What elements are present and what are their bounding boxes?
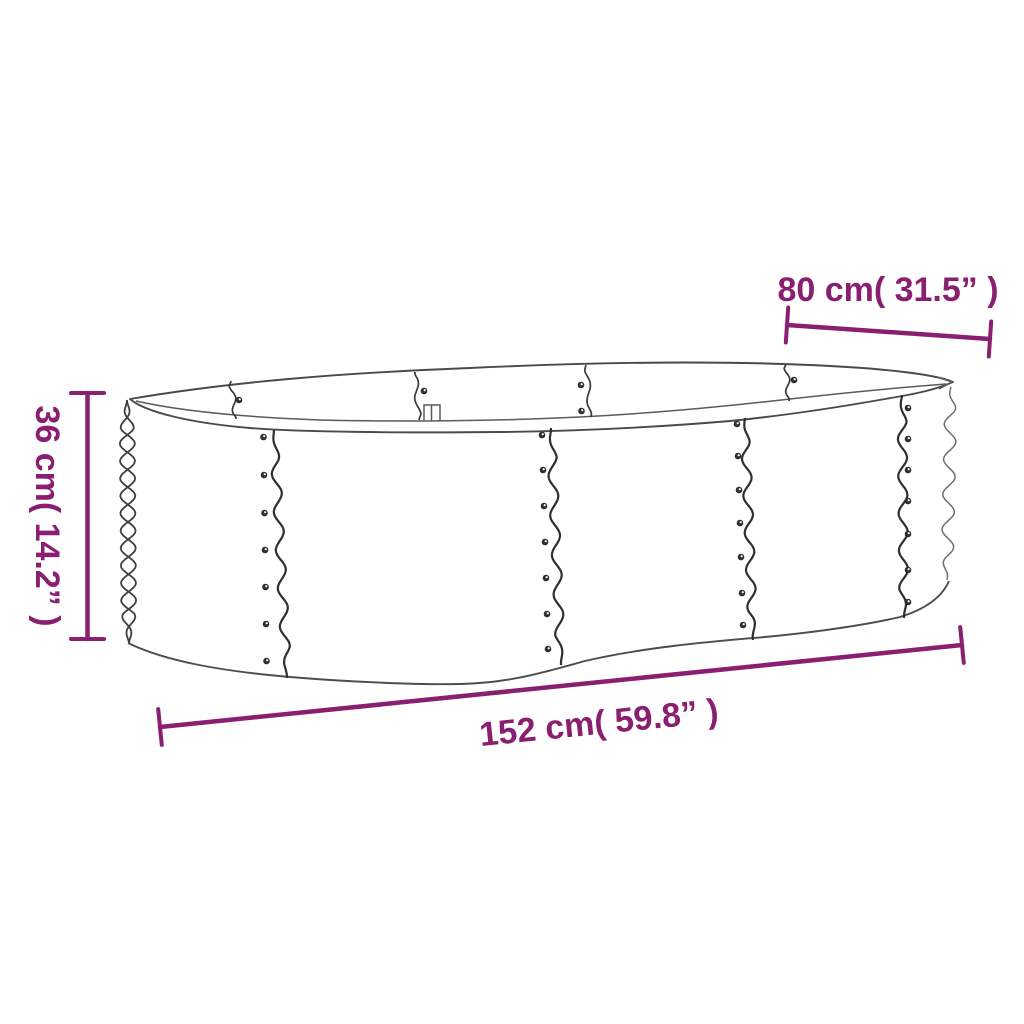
panel-seam-front	[742, 418, 756, 640]
planter-rim-outline	[130, 363, 953, 433]
height-dimension-label: 36 cm( 14.2” )	[28, 405, 66, 626]
length-dimension-tick-left	[158, 709, 162, 745]
panel-seam-front	[549, 428, 564, 665]
planter-right-corrugation	[942, 387, 956, 580]
rivet-column	[260, 434, 270, 665]
width-dimension-tick-left	[786, 308, 788, 343]
width-dimension-line	[787, 325, 990, 339]
length-dimension-tick-right	[960, 627, 964, 663]
rivet	[236, 397, 243, 404]
dimension-width: 80 cm( 31.5” )	[777, 271, 998, 357]
length-dimension-label: 152 cm( 59.8” )	[478, 692, 721, 754]
planter-left-corrugation	[120, 400, 136, 644]
dimension-height: 36 cm( 14.2” )	[28, 393, 104, 639]
product-dimension-image: 80 cm( 31.5” ) 36 cm( 14.2” ) 152 cm( 59…	[0, 0, 1024, 1024]
diagram-svg: 80 cm( 31.5” ) 36 cm( 14.2” ) 152 cm( 59…	[0, 0, 1024, 1024]
panel-seam-front	[272, 430, 290, 678]
rivet-column	[539, 432, 552, 653]
rivet	[791, 377, 798, 384]
rivet	[421, 388, 428, 395]
panel-seam-front	[898, 395, 908, 618]
width-dimension-label: 80 cm( 31.5” )	[777, 271, 998, 309]
width-dimension-tick-right	[989, 322, 991, 357]
planter-drawing	[120, 363, 956, 685]
planter-bottom-edge	[128, 581, 949, 684]
